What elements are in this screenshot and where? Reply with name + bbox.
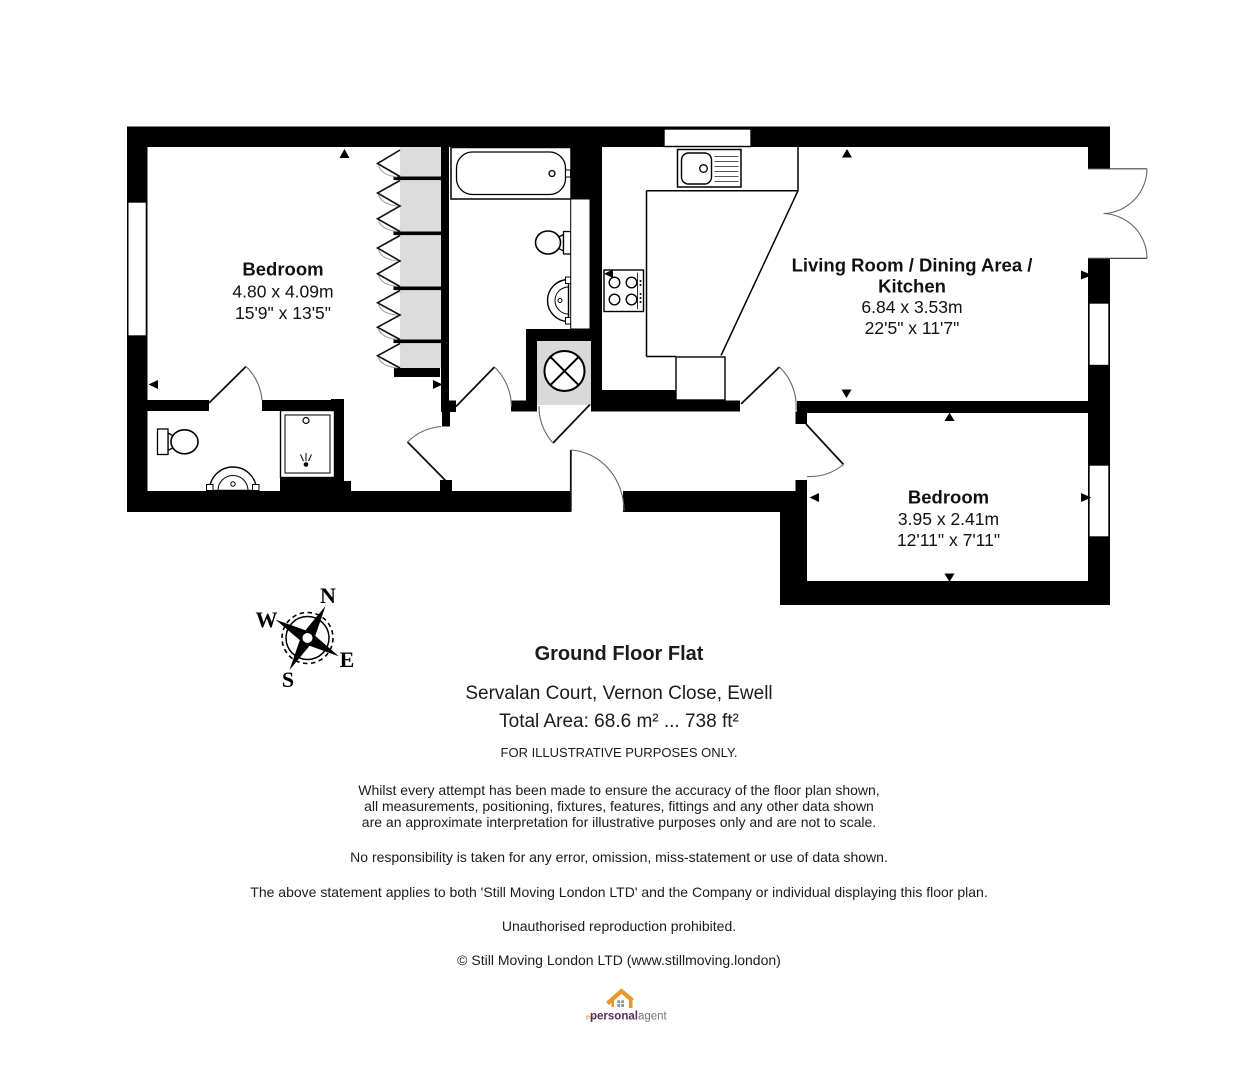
svg-text:6.84 x 3.53m: 6.84 x 3.53m	[861, 297, 962, 317]
svg-text:N: N	[320, 583, 336, 608]
svg-text:Bedroom: Bedroom	[242, 258, 323, 279]
svg-text:4.80 x 4.09m: 4.80 x 4.09m	[232, 281, 333, 301]
svg-text:22'5" x 11'7": 22'5" x 11'7"	[865, 318, 960, 338]
svg-text:12'11" x 7'11": 12'11" x 7'11"	[897, 530, 1000, 550]
svg-text:W: W	[256, 607, 278, 632]
svg-text:personalagent: personalagent	[590, 1011, 668, 1023]
svg-text:3.95 x 2.41m: 3.95 x 2.41m	[898, 509, 999, 529]
svg-text:Bedroom: Bedroom	[908, 486, 989, 507]
svg-text:Living Room / Dining Area /: Living Room / Dining Area /	[792, 254, 1033, 275]
svg-text:Kitchen: Kitchen	[878, 275, 946, 296]
svg-text:15'9" x 13'5": 15'9" x 13'5"	[235, 303, 331, 323]
